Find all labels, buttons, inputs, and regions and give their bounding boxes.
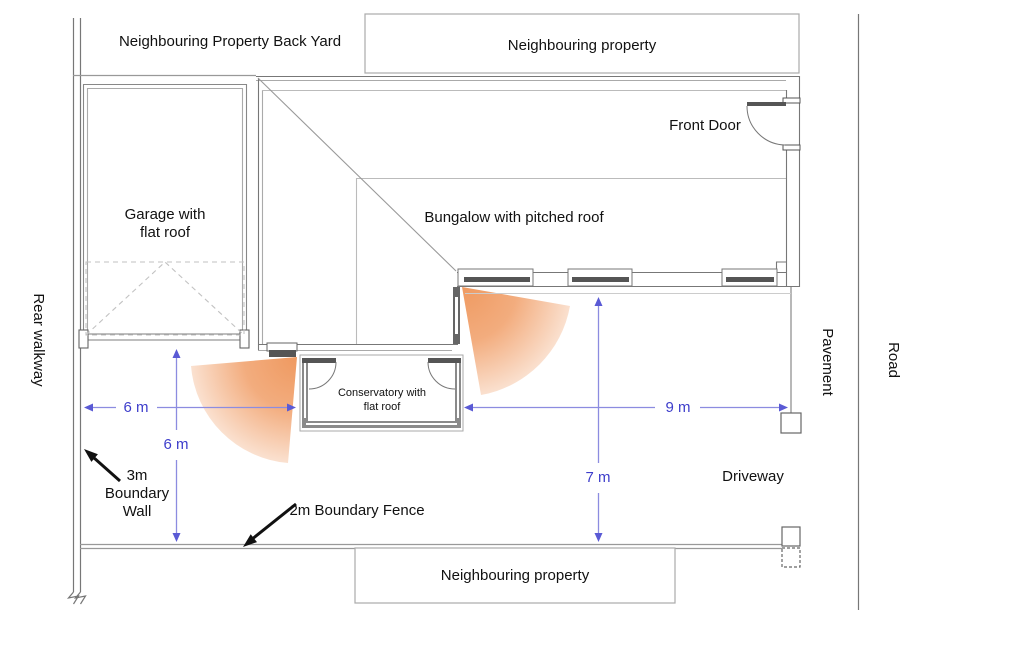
front-door — [747, 98, 800, 150]
conservatory-label: Conservatory with flat roof — [338, 386, 426, 414]
dimension-rear-depth-label: 6 m — [159, 436, 192, 454]
pavement-label: Pavement — [819, 328, 835, 396]
conservatory-label-line2: flat roof — [338, 400, 426, 414]
conservatory-label-line1: Conservatory with — [338, 386, 426, 400]
bungalow-west-wing-wall — [453, 287, 460, 344]
bungalow-front-windows — [458, 269, 777, 286]
gate-posts — [781, 413, 801, 567]
dimension-driveway-width-label: 9 m — [661, 399, 694, 417]
conservatory-door-right-leaf — [428, 358, 461, 363]
sensor-fan-right — [462, 287, 570, 395]
garage-label: Garage with flat roof — [125, 206, 206, 242]
bungalow-label: Bungalow with pitched roof — [424, 209, 603, 227]
boundary-wall-label: 3m Boundary Wall — [105, 467, 169, 521]
site-plan: Neighbouring Property Back Yard Neighbou… — [0, 0, 1024, 658]
front-door-label: Front Door — [669, 117, 741, 135]
sensor-fan-left — [191, 357, 297, 463]
conservatory-door-left-leaf — [302, 358, 336, 363]
driveway-label: Driveway — [722, 468, 784, 486]
garage-door-dashed — [86, 262, 244, 335]
neighbour-bottom-label: Neighbouring property — [441, 567, 589, 585]
dimension-driveway-depth-label: 7 m — [581, 469, 614, 487]
garage-label-line1: Garage with — [125, 206, 206, 224]
conservatory-door-right-swing — [428, 362, 455, 389]
boundary-fence-label: 2m Boundary Fence — [289, 502, 424, 520]
conservatory-door-left-swing — [309, 362, 336, 389]
boundary-wall-label-line3: Wall — [105, 503, 169, 521]
road-label: Road — [885, 342, 901, 378]
rear-walkway-label: Rear walkway — [30, 293, 46, 386]
dimension-rear-width-label: 6 m — [119, 399, 152, 417]
site-plan-drawing — [0, 0, 1024, 658]
boundary-wall-label-line2: Boundary — [105, 485, 169, 503]
back-yard-label: Neighbouring Property Back Yard — [119, 33, 341, 51]
neighbour-top-label: Neighbouring property — [508, 37, 656, 55]
garage-label-line2: flat roof — [125, 224, 206, 242]
boundary-wall-label-line1: 3m — [105, 467, 169, 485]
back-door — [267, 343, 297, 357]
